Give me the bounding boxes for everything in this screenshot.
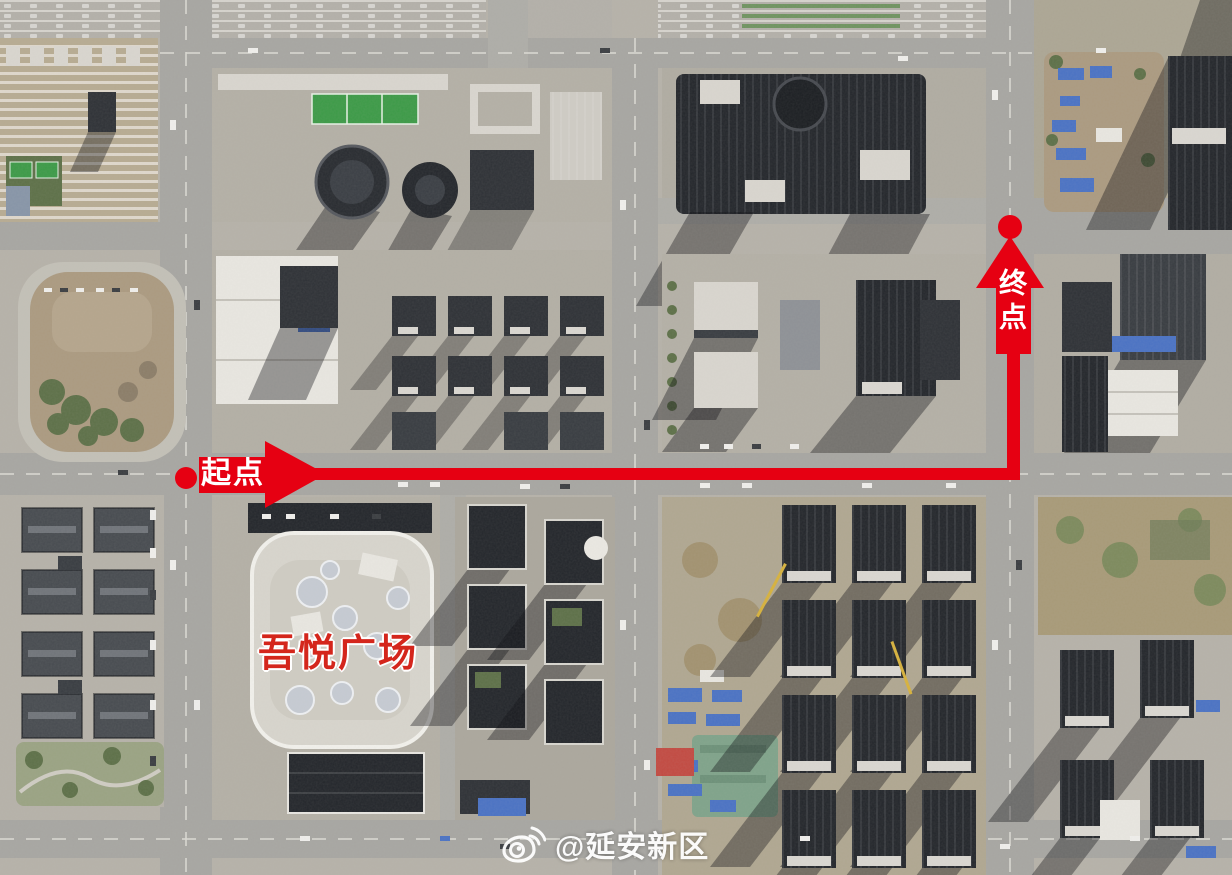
route-start-dot <box>175 467 197 489</box>
route-end-dot <box>998 215 1022 239</box>
satellite-imagery <box>0 0 1232 875</box>
route-end-label: 终点 <box>987 250 1035 354</box>
weibo-icon <box>500 824 546 864</box>
satellite-map: 起点 终点 吾悦广场 @延安新区 <box>0 0 1232 875</box>
image-grain <box>0 0 1232 875</box>
route-line-vertical <box>1007 350 1020 474</box>
poi-label-wuyue-plaza: 吾悦广场 <box>258 622 418 677</box>
watermark-text: @延安新区 <box>555 822 709 866</box>
route-start-label: 起点 <box>197 455 269 493</box>
watermark: @延安新区 <box>500 822 709 866</box>
route-line-horizontal <box>298 468 1020 480</box>
